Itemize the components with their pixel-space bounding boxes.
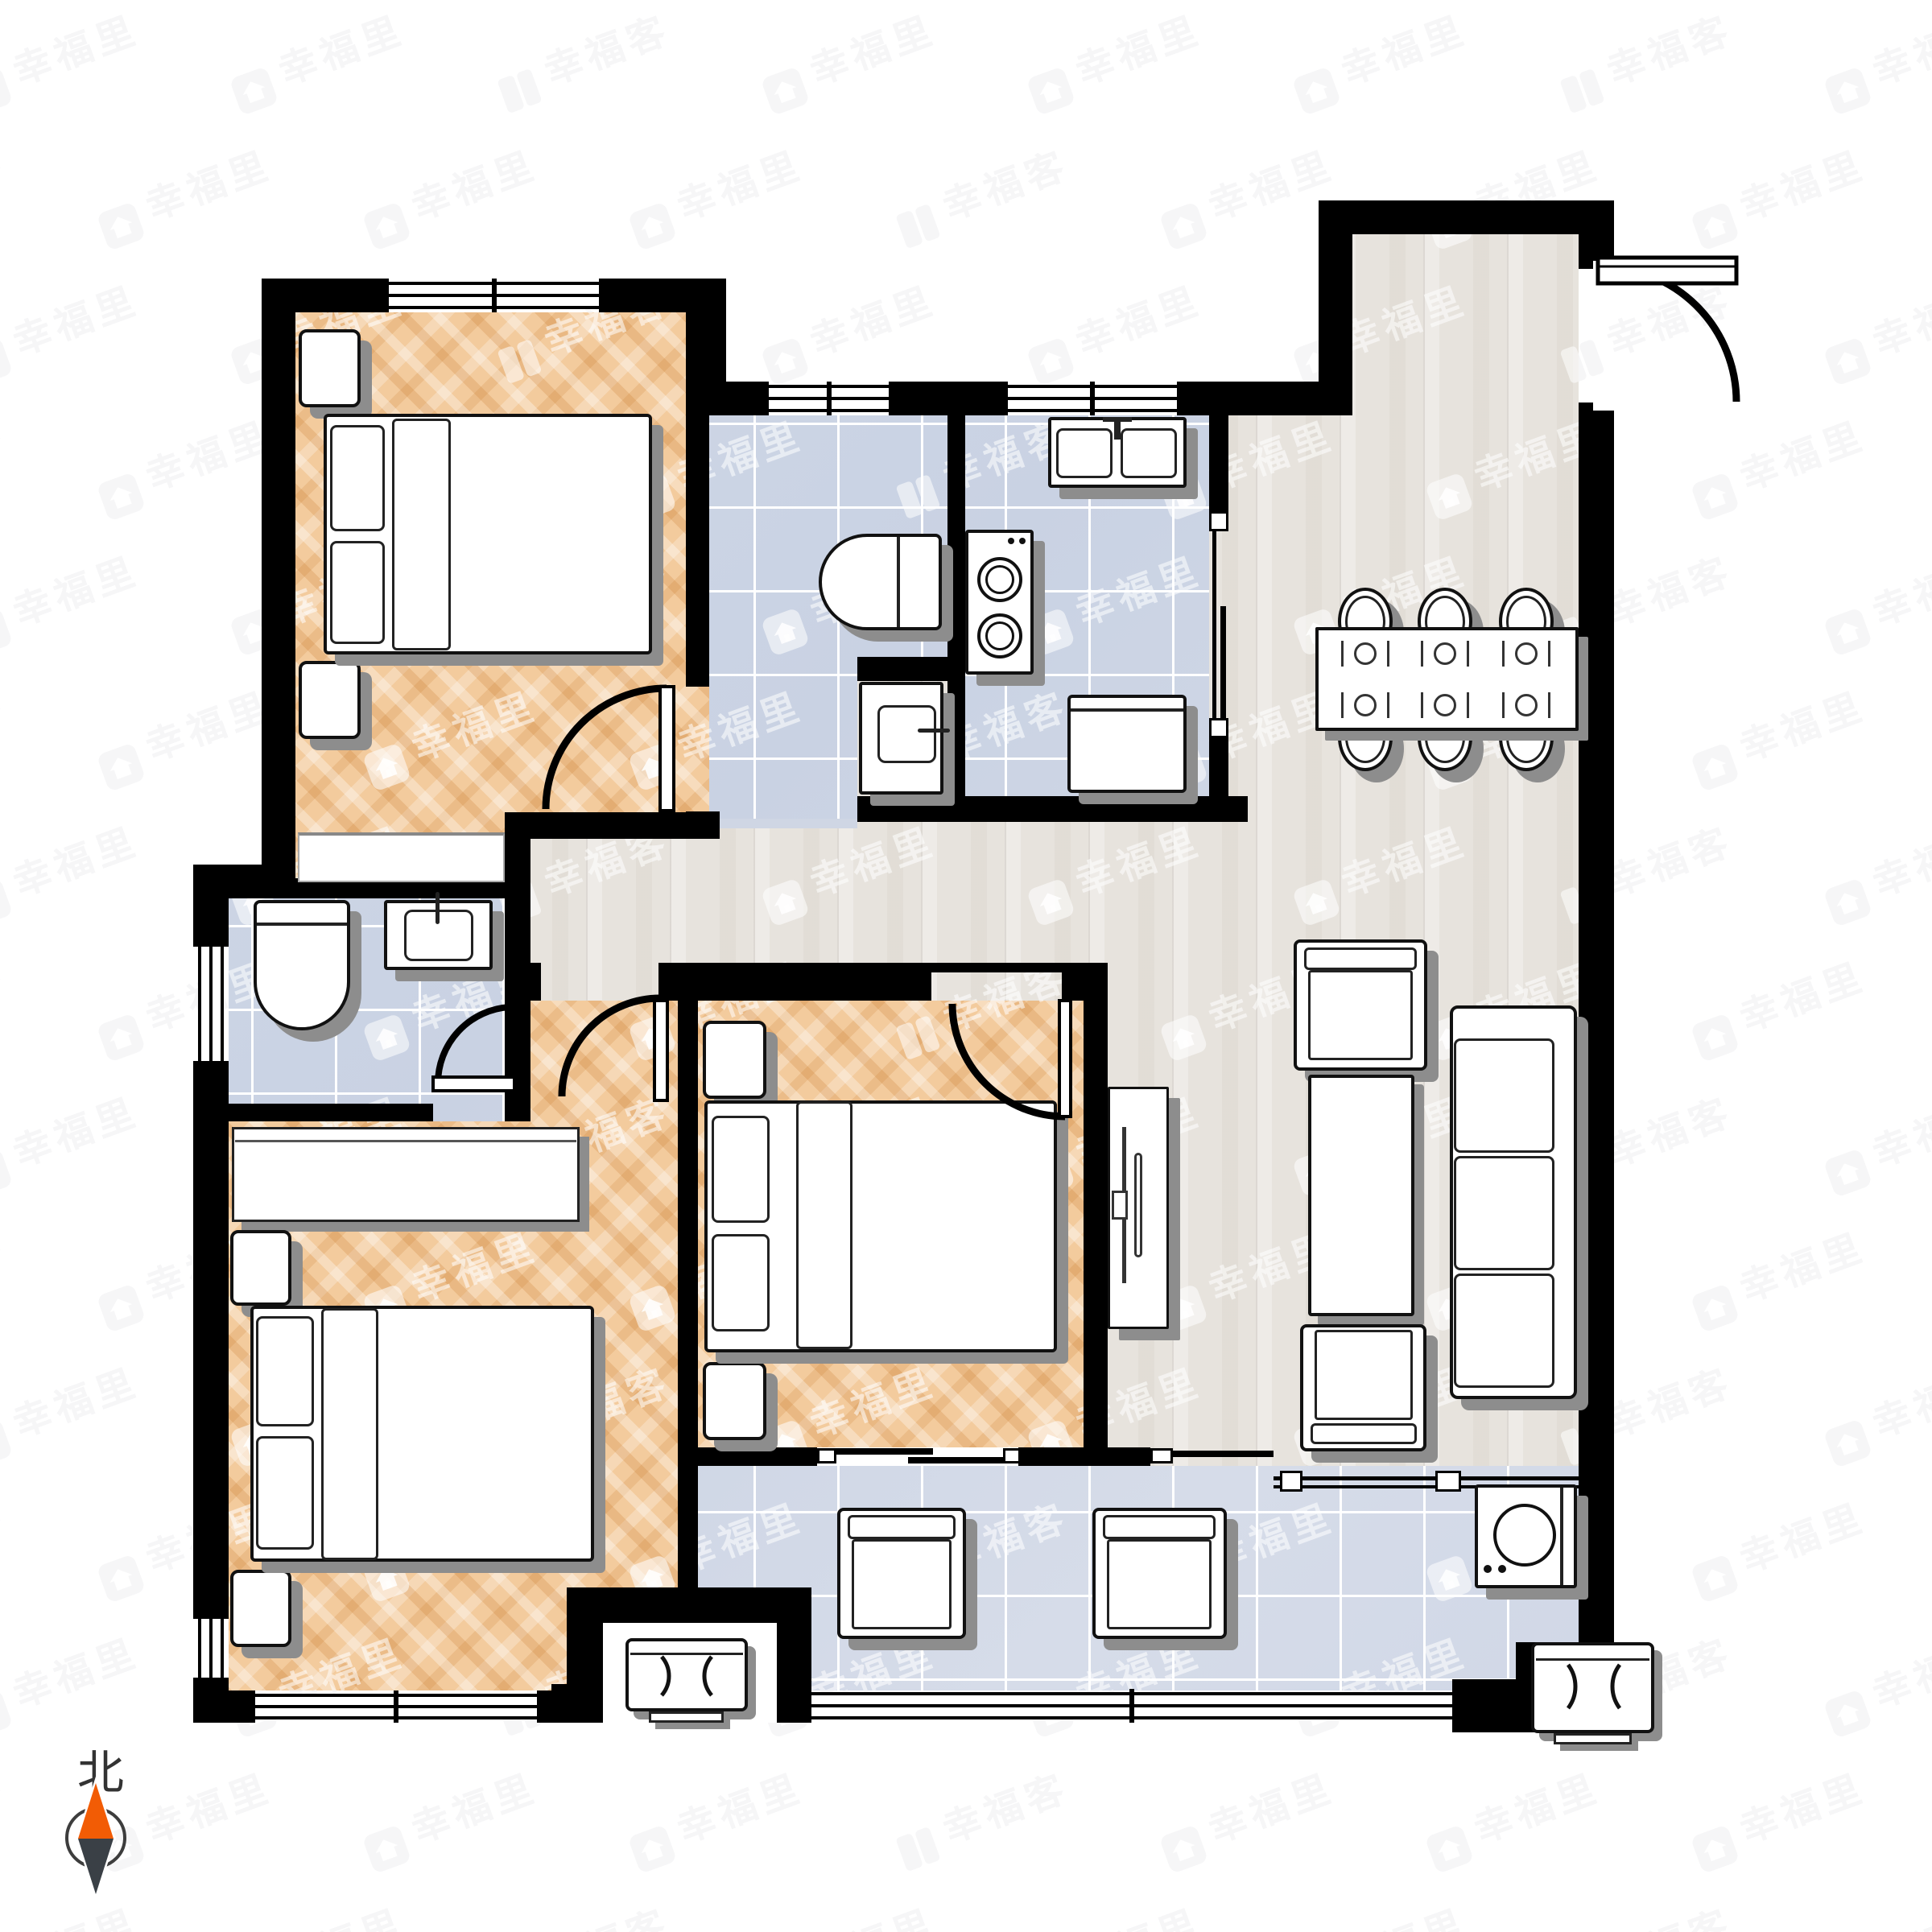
svg-text:北: 北: [77, 1747, 124, 1799]
